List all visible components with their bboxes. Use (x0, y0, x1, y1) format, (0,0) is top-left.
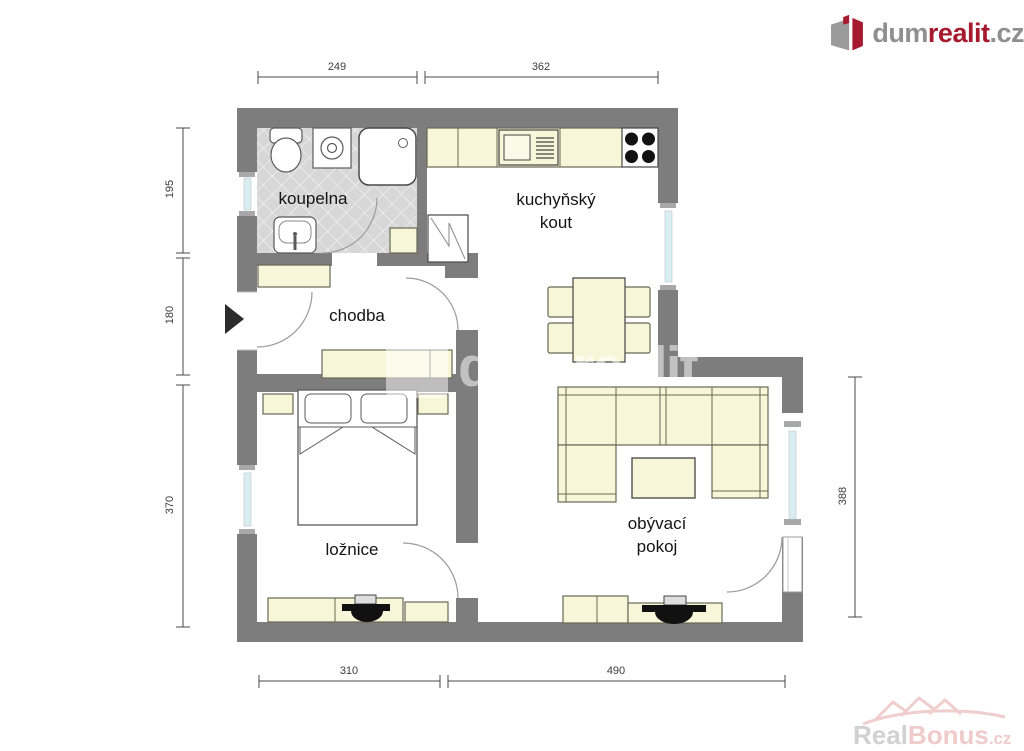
double-bed (298, 390, 417, 525)
dining-table (573, 278, 625, 362)
dumrealit-logo-text: dumrealit.cz (872, 18, 1024, 49)
realbonus-suffix: .cz (989, 729, 1012, 748)
water-heater (390, 228, 417, 253)
dumrealit-logo-icon (828, 8, 864, 58)
dim-left-upper: 195 (164, 169, 176, 209)
kitchen-counter (427, 128, 623, 167)
realbonus-prefix: Real (853, 720, 908, 750)
dining-set (548, 278, 650, 362)
chair (624, 323, 650, 353)
coffee-table (632, 458, 695, 498)
dim-left-middle: 180 (164, 295, 176, 335)
chair (624, 287, 650, 317)
realbonus-text: RealBonus.cz (853, 720, 1012, 751)
balcony-door (783, 537, 802, 592)
plan-graphics (0, 0, 1024, 751)
kitchen-sink-module (499, 130, 558, 165)
room-label-kitchen-line2: kout (486, 211, 626, 234)
room-label-living-line2: pokoj (587, 535, 727, 558)
balcony-door-arc (727, 537, 782, 592)
realbonus-accent: Bonus (908, 720, 989, 750)
washing-machine (313, 128, 351, 168)
living-window (782, 413, 803, 537)
room-label-bathroom: koupelna (253, 187, 373, 210)
room-label-kitchen: kuchyňský kout (486, 188, 626, 234)
bathroom-sink (274, 217, 316, 253)
realbonus-watermark: RealBonus.cz (845, 690, 1024, 750)
dim-left-lower: 370 (164, 485, 176, 525)
logo-suffix: .cz (989, 18, 1024, 48)
logo-prefix: dum (872, 18, 928, 48)
logo-accent: realit (928, 18, 990, 48)
dim-right-side: 388 (837, 476, 849, 516)
nightstand-left (263, 394, 293, 414)
kitchen-window (658, 203, 678, 290)
hall-shelf (258, 265, 330, 287)
stove (622, 128, 658, 167)
dumrealit-logo: dumrealit.cz (828, 6, 1024, 60)
dim-top-right: 362 (521, 61, 561, 73)
nightstand-right (418, 394, 448, 414)
chair (548, 323, 574, 353)
dim-bottom-left: 310 (329, 665, 369, 677)
room-label-kitchen-line1: kuchyňský (486, 188, 626, 211)
bedroom-window (237, 465, 257, 534)
room-label-living-line1: obývací (587, 512, 727, 535)
room-label-hall: chodba (297, 304, 417, 327)
shower (359, 128, 416, 185)
dim-bottom-right: 490 (596, 665, 636, 677)
fridge (428, 215, 468, 262)
toilet (270, 128, 302, 172)
room-label-bedroom: ložnice (292, 538, 412, 561)
room-label-living: obývací pokoj (587, 512, 727, 558)
chair (548, 287, 574, 317)
floorplan-page: koupelna kuchyňský kout chodba ložnice o… (0, 0, 1024, 751)
dim-top-left: 249 (317, 61, 357, 73)
hall-wardrobe (322, 350, 452, 378)
